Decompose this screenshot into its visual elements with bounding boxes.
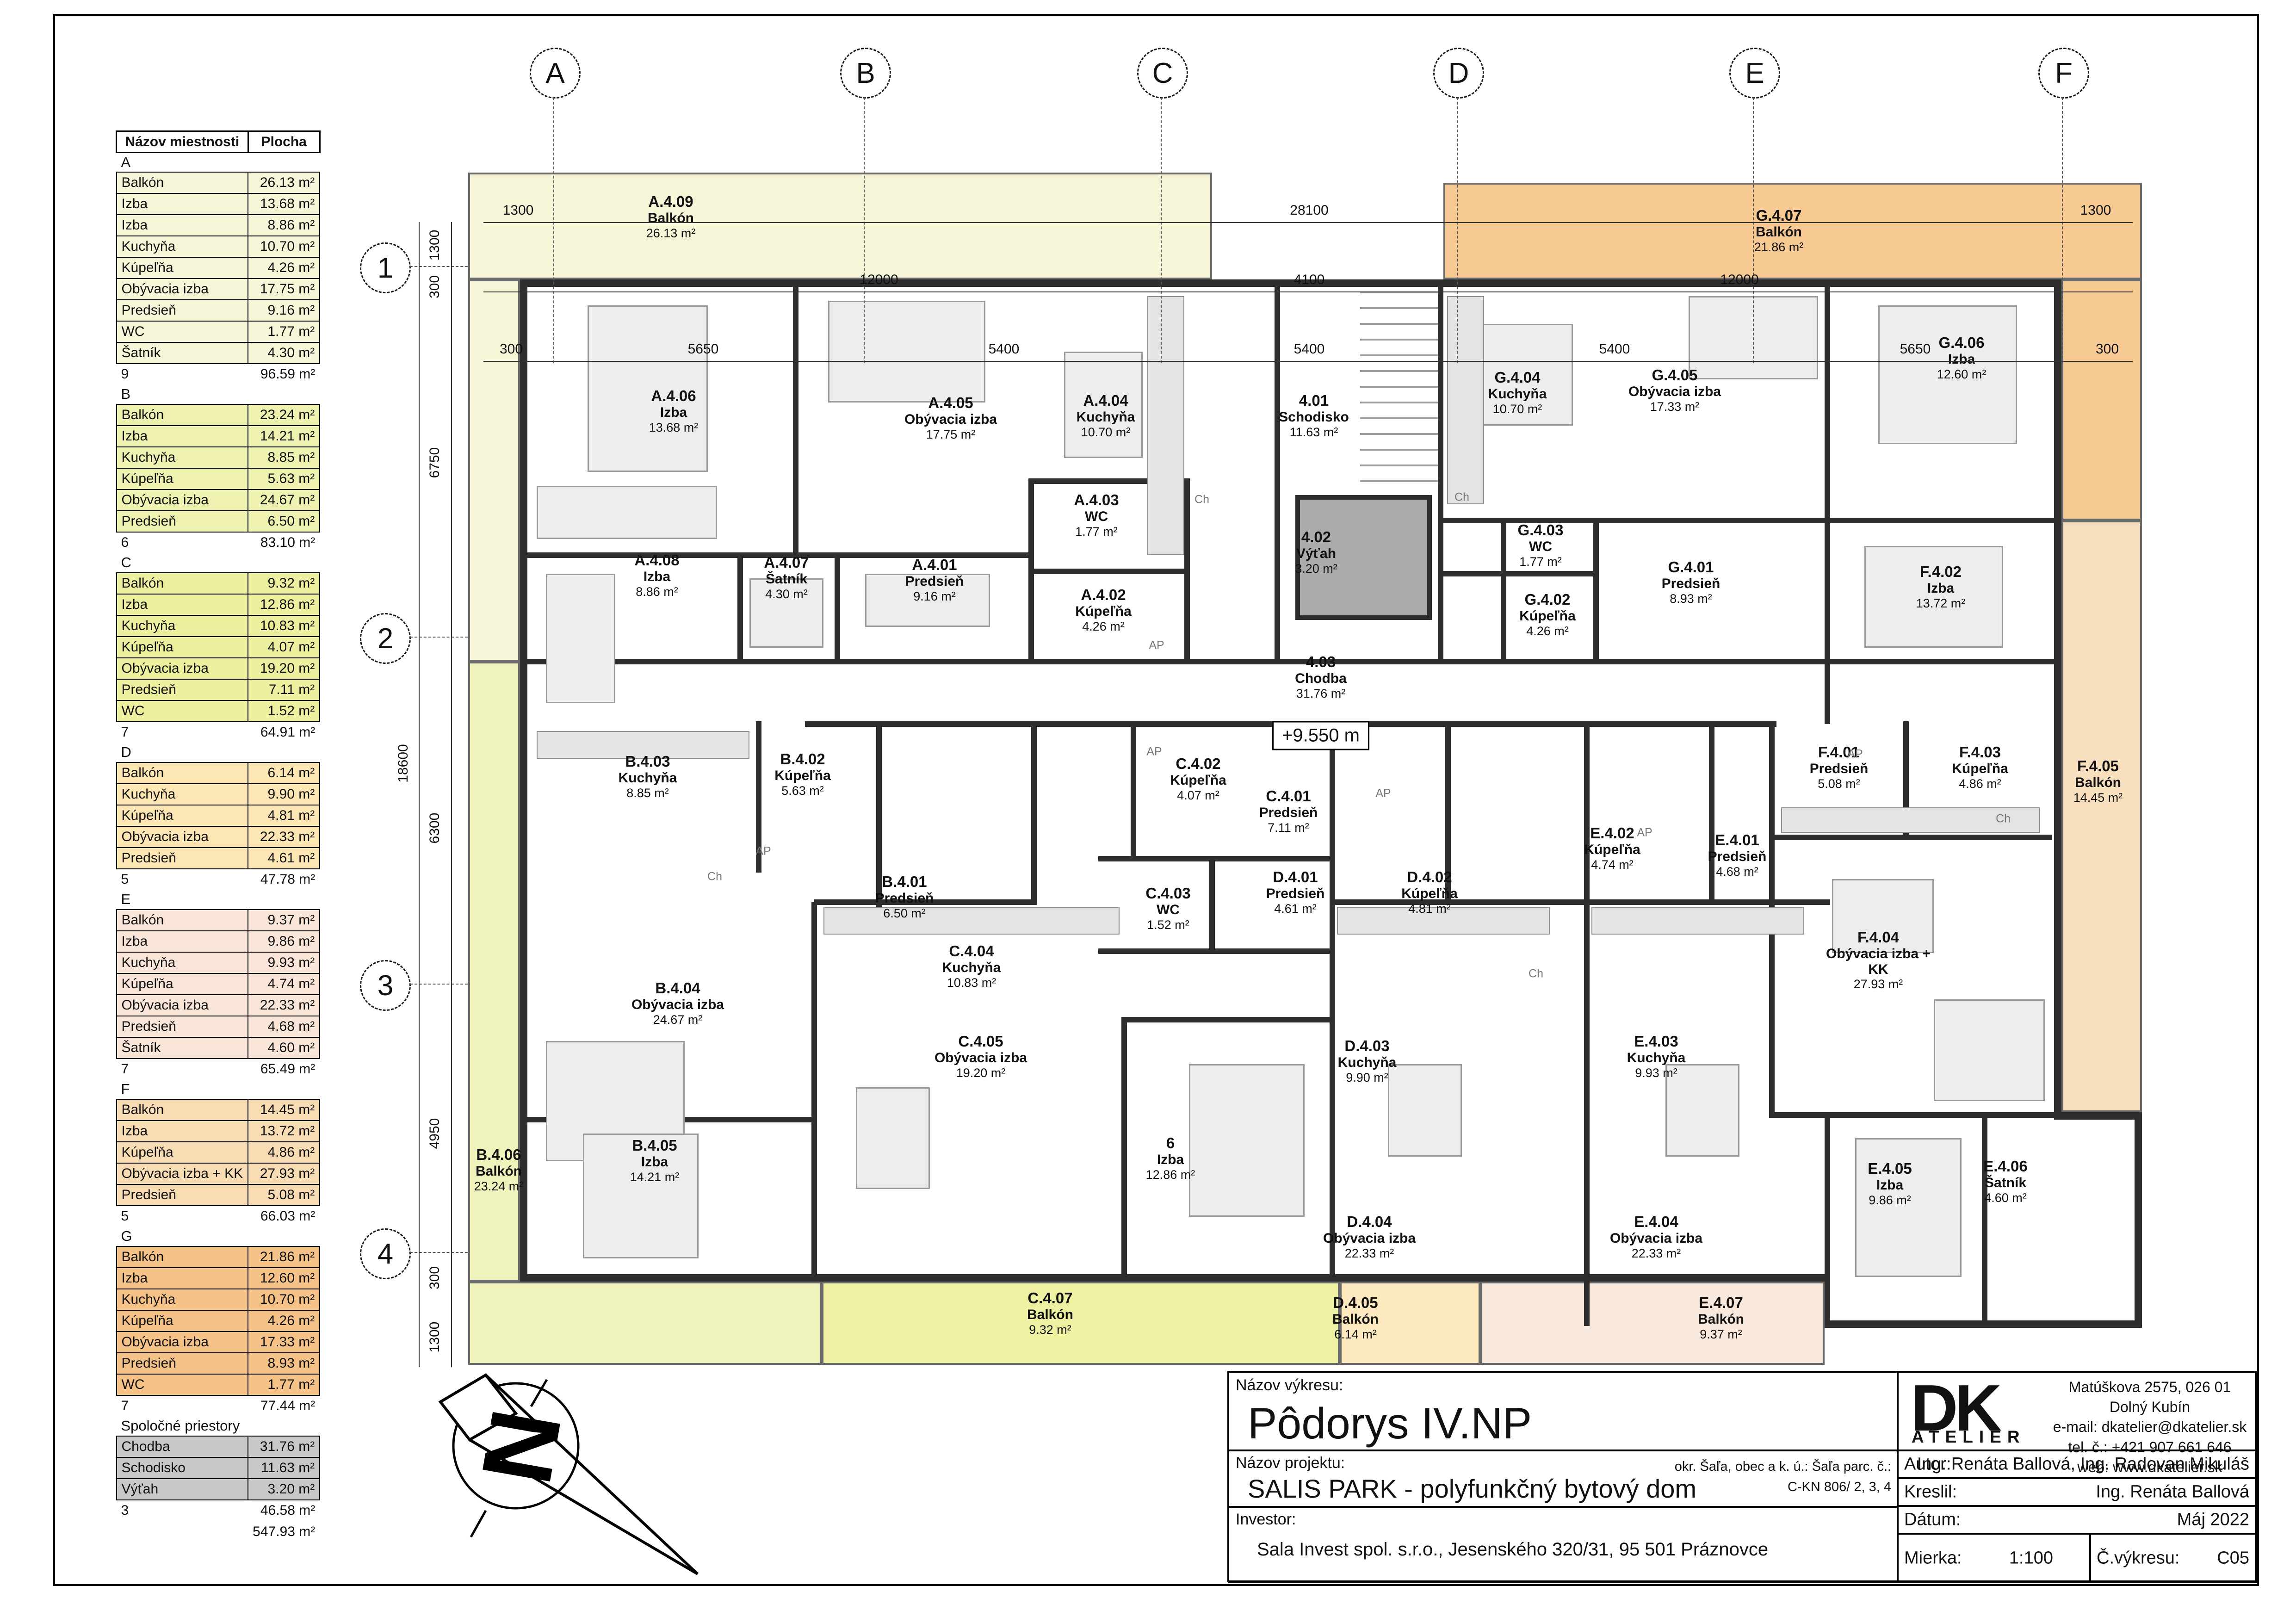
room-label-A.4.04: A.4.04Kuchyňa10.70 m² (1050, 392, 1161, 439)
grid-row-4: 4 (360, 1228, 411, 1279)
room-label-E.4.03: E.4.03Kuchyňa9.93 m² (1601, 1033, 1712, 1080)
room-label-G.4.02: G.4.02Kúpeľňa4.26 m² (1492, 591, 1603, 638)
balcony-right-G (2061, 279, 2142, 520)
grid-row-3: 3 (360, 960, 411, 1011)
floor-plan-sheet: { "legend": { "header": ["Názov miestnos… (0, 0, 2296, 1623)
legend-row: Kuchyňa10.70 m² (117, 1289, 320, 1310)
room-label-B.4.01: B.4.01Predsieň6.50 m² (849, 873, 960, 920)
wall (1825, 287, 1830, 520)
room-label-C.4.05: C.4.05Obývacia izba19.20 m² (925, 1033, 1036, 1080)
dimension-text: 1300 (2080, 203, 2111, 218)
room-label-C.4.07: C.4.07Balkón9.32 m² (995, 1290, 1106, 1337)
legend-row: Predsieň4.61 m² (117, 848, 320, 869)
legend-row: Predsieň7.11 m² (117, 679, 320, 700)
room-label-A.4.05: A.4.05Obývacia izba17.75 m² (895, 395, 1006, 441)
room-label-B.4.05: B.4.05Izba14.21 m² (599, 1137, 710, 1184)
dimension-line (483, 361, 2133, 362)
furniture (1934, 999, 2045, 1101)
mierka-label: Mierka: (1904, 1548, 1962, 1568)
grid-line (1753, 97, 1754, 363)
datum-label: Dátum: (1904, 1510, 1961, 1530)
washer-tag: AP (1847, 748, 1863, 761)
legend-table: Názov miestnostiPlochaABalkón26.13 m²Izb… (116, 130, 321, 1542)
room-label-B.4.03: B.4.03Kuchyňa8.85 m² (592, 753, 703, 800)
dimension-text: 6300 (427, 813, 443, 844)
room-label-F.4.02: F.4.02Izba13.72 m² (1885, 564, 1996, 610)
dimension-text: 4100 (1294, 272, 1325, 288)
dimension-line (419, 222, 420, 1367)
legend-row: Kúpeľňa5.63 m² (117, 468, 320, 489)
wall (2135, 1112, 2142, 1328)
legend-row: Obývacia izba + KK27.93 m² (117, 1163, 320, 1184)
legend-row: Izba12.60 m² (117, 1268, 320, 1289)
wall (520, 1274, 1830, 1282)
legend-row: Izba12.86 m² (117, 594, 320, 615)
legend-row: Obývacia izba22.33 m² (117, 995, 320, 1016)
room-label-C.4.01: C.4.01Predsieň7.11 m² (1233, 788, 1344, 835)
fridge-tag: Ch (1529, 967, 1543, 981)
legend-row: Balkón6.14 m² (117, 762, 320, 784)
kreslil-label: Kreslil: (1904, 1482, 1957, 1502)
north-arrow-icon: N (416, 1356, 712, 1605)
wall (1982, 1115, 1987, 1326)
legend-row: Balkón14.45 m² (117, 1099, 320, 1121)
room-label-A.4.07: A.4.07Šatník4.30 m² (731, 554, 842, 601)
grid-line (553, 97, 554, 363)
washer-tag: AP (755, 845, 771, 858)
washer-tag: AP (1149, 639, 1164, 652)
legend-section-2: C (117, 553, 320, 573)
washer-tag: AP (1637, 826, 1652, 840)
title-block: Názov výkresu: Pôdorys IV.NP Názov proje… (1227, 1371, 2257, 1582)
wall (1825, 518, 1830, 724)
dk-logo-subtitle: ATELIÉR (1912, 1427, 2026, 1447)
elevation-marker: +9.550 m (1272, 721, 1369, 750)
legend-row: Izba13.72 m² (117, 1121, 320, 1142)
legend-row: Kúpeľňa4.26 m² (117, 257, 320, 279)
balcony-F405 (2061, 520, 2142, 1112)
legend-row: Predsieň5.08 m² (117, 1184, 320, 1206)
grid-line (2062, 97, 2063, 363)
room-label-A.4.01: A.4.01Predsieň9.16 m² (879, 557, 990, 603)
room-label-F.4.04: F.4.04Obývacia izba + KK27.93 m² (1823, 929, 1934, 991)
wall (1121, 1017, 1332, 1022)
legend-sum-row: 777.44 m² (117, 1395, 320, 1417)
legend-row: Kuchyňa10.70 m² (117, 236, 320, 257)
legend-section-6: G (117, 1227, 320, 1246)
fridge-tag: Ch (1996, 812, 2011, 826)
dimension-text: 12000 (860, 272, 898, 288)
project-title: SALIS PARK - polyfunkčný bytový dom (1248, 1474, 1696, 1504)
room-label-E.4.05: E.4.05Izba9.86 m² (1834, 1160, 1945, 1207)
wall (520, 279, 527, 1282)
room-label-A.4.02: A.4.02Kúpeľňa4.26 m² (1048, 587, 1159, 633)
room-label-B.4.06: B.4.06Balkón23.24 m² (443, 1146, 554, 1193)
svg-text:N: N (460, 1402, 582, 1492)
furniture (856, 1087, 930, 1189)
furniture (828, 301, 985, 403)
room-label-F.4.01: F.4.01Predsieň5.08 m² (1783, 744, 1894, 791)
balcony-left-top (468, 279, 520, 662)
autor-value: Ing. Renáta Ballová, Ing. Radovan Mikulá… (1917, 1455, 2249, 1474)
legend-row: Balkón21.86 m² (117, 1246, 320, 1268)
wall (1443, 571, 1596, 576)
room-label-A.4.06: A.4.06Izba13.68 m² (618, 388, 729, 434)
investor-name: Sala Invest spol. s.r.o., Jesenského 320… (1257, 1539, 1768, 1560)
stairs (1360, 291, 1438, 486)
wall (1184, 478, 1190, 662)
legend-sum-row: 547.78 m² (117, 869, 320, 890)
legend-sum-row: 683.10 m² (117, 532, 320, 553)
legend-section-0: A (117, 153, 320, 172)
legend-section-7: Spoločné priestory (117, 1417, 320, 1436)
dimension-line (483, 222, 2133, 223)
dimension-text: 300 (500, 341, 523, 357)
grid-column-F: F (2038, 48, 2089, 99)
legend-row: Predsieň8.93 m² (117, 1353, 320, 1374)
room-label-B.4.02: B.4.02Kúpeľňa5.63 m² (747, 751, 858, 798)
legend-grand-total: 547.93 m² (117, 1521, 320, 1542)
legend-row: Výťah3.20 m² (117, 1479, 320, 1500)
room-label-G.4.05: G.4.05Obývacia izba17.33 m² (1619, 367, 1730, 414)
drawing-title: Pôdorys IV.NP (1248, 1399, 1532, 1449)
dimension-line (483, 291, 2133, 292)
grid-line (1161, 97, 1162, 363)
room-label-A.4.09: A.4.09Balkón26.13 m² (615, 193, 726, 240)
legend-section-5: F (117, 1080, 320, 1099)
project-title-label: Názov projektu: (1236, 1454, 1345, 1472)
datum-value: Máj 2022 (2177, 1510, 2249, 1530)
legend-header-name: Názov miestnosti (117, 131, 248, 153)
cislo-vykresu-label: Č.výkresu: (2097, 1548, 2179, 1568)
room-label-A.4.03: A.4.03WC1.77 m² (1041, 492, 1152, 539)
room-label-B.4.04: B.4.04Obývacia izba24.67 m² (622, 980, 733, 1027)
balcony-B406 (468, 1282, 822, 1365)
legend-row: Obývacia izba22.33 m² (117, 826, 320, 848)
legend-row: Kuchyňa9.90 m² (117, 784, 320, 805)
legend-row: Balkón26.13 m² (117, 172, 320, 193)
legend-row: Izba8.86 m² (117, 215, 320, 236)
grid-line (864, 97, 865, 363)
dimension-text: 18600 (396, 744, 411, 782)
grid-column-A: A (530, 48, 581, 99)
balcony-A409 (468, 173, 1212, 279)
legend-row: Šatník4.60 m² (117, 1037, 320, 1059)
legend-row: Obývacia izba17.75 m² (117, 279, 320, 300)
room-label-C.4.04: C.4.04Kuchyňa10.83 m² (916, 943, 1027, 990)
wall (1098, 856, 1332, 861)
dimension-text: 300 (427, 1266, 443, 1289)
washer-tag: AP (1375, 787, 1391, 800)
dimension-text: 5400 (1294, 341, 1325, 357)
legend-row: Izba9.86 m² (117, 931, 320, 952)
room-label-E.4.07: E.4.07Balkón9.37 m² (1665, 1295, 1776, 1341)
room-label-D.4.04: D.4.04Obývacia izba22.33 m² (1314, 1214, 1425, 1260)
legend-header-area: Plocha (248, 131, 320, 153)
dimension-text: 1300 (503, 203, 534, 218)
dimension-line (451, 222, 452, 1367)
legend-row: Predsieň4.68 m² (117, 1016, 320, 1037)
fridge-tag: Ch (1194, 493, 1209, 507)
fridge-tag: Ch (1454, 491, 1469, 504)
furniture (537, 486, 717, 539)
wall (1275, 287, 1280, 659)
furniture (1855, 1138, 1962, 1277)
legend-section-3: D (117, 743, 320, 762)
legend-row: Obývacia izba19.20 m² (117, 658, 320, 679)
wall (1584, 899, 1830, 905)
dimension-text: 5650 (1900, 341, 1931, 357)
room-area-legend: Názov miestnostiPlochaABalkón26.13 m²Izb… (116, 130, 321, 1542)
dimension-text: 300 (2096, 341, 2119, 357)
wall (1769, 835, 2052, 840)
kitchen-counter (1591, 907, 1804, 935)
legend-row: Predsieň9.16 m² (117, 300, 320, 321)
dimension-text: 1300 (427, 1322, 443, 1353)
investor-label: Investor: (1236, 1511, 1296, 1529)
legend-sum-row: 765.49 m² (117, 1059, 320, 1080)
mierka-value: 1:100 (2009, 1548, 2053, 1568)
grid-line (1457, 97, 1458, 363)
dimension-text: 28100 (1290, 203, 1328, 218)
drawing-title-label: Názov výkresu: (1236, 1376, 1343, 1394)
legend-row: Kúpeľňa4.74 m² (117, 973, 320, 995)
wall (811, 902, 817, 1280)
legend-row: Balkón23.24 m² (117, 404, 320, 426)
legend-row: Schodisko11.63 m² (117, 1457, 320, 1479)
room-label-E.4.04: E.4.04Obývacia izba22.33 m² (1601, 1214, 1712, 1260)
legend-row: WC1.52 m² (117, 700, 320, 722)
legend-row: Kuchyňa9.93 m² (117, 952, 320, 973)
wall (520, 279, 2061, 287)
room-label-D.4.03: D.4.03Kuchyňa9.90 m² (1312, 1038, 1423, 1084)
legend-row: Chodba31.76 m² (117, 1436, 320, 1457)
grid-column-C: C (1137, 48, 1188, 99)
room-label-D.4.05: D.4.05Balkón6.14 m² (1300, 1295, 1411, 1341)
dimension-text: 300 (427, 275, 443, 298)
legend-row: Kuchyňa10.83 m² (117, 615, 320, 637)
kreslil-value: Ing. Renáta Ballová (2096, 1482, 2249, 1502)
wall (1438, 287, 1443, 659)
dimension-text: 5650 (688, 341, 719, 357)
wall (793, 287, 798, 555)
legend-row: Obývacia izba24.67 m² (117, 489, 320, 511)
wall (1825, 1115, 1830, 1326)
legend-row: Kúpeľňa4.26 m² (117, 1310, 320, 1332)
room-label-6: 6Izba12.86 m² (1115, 1135, 1226, 1182)
room-label-E.4.06: E.4.06Šatník4.60 m² (1950, 1158, 2061, 1205)
location-parcel: okr. Šaľa, obec a k. ú.: Šaľa parc. č.: … (1675, 1457, 1891, 1497)
grid-row-2: 2 (360, 613, 411, 664)
legend-sum-row: 566.03 m² (117, 1206, 320, 1227)
legend-row: Izba13.68 m² (117, 193, 320, 215)
wall (1031, 569, 1187, 574)
grid-column-B: B (840, 48, 891, 99)
room-label-C.4.03: C.4.03WC1.52 m² (1113, 885, 1224, 932)
fridge-tag: Ch (707, 870, 722, 884)
wall (1584, 721, 1590, 1326)
grid-column-E: E (1729, 48, 1780, 99)
legend-row: Balkón9.37 m² (117, 910, 320, 931)
legend-sum-row: 996.59 m² (117, 364, 320, 385)
legend-row: Kúpeľňa4.86 m² (117, 1142, 320, 1163)
legend-sum-row: 346.58 m² (117, 1500, 320, 1521)
legend-row: Kúpeľňa4.81 m² (117, 805, 320, 826)
room-label-G.4.03: G.4.03WC1.77 m² (1485, 522, 1596, 569)
room-label-G.4.04: G.4.04Kuchyňa10.70 m² (1462, 369, 1573, 416)
legend-row: Izba14.21 m² (117, 426, 320, 447)
dimension-text: 6750 (427, 447, 443, 478)
legend-sum-row: 764.91 m² (117, 722, 320, 743)
dimension-text: 12000 (1720, 272, 1758, 288)
legend-row: Obývacia izba17.33 m² (117, 1332, 320, 1353)
room-label-A.4.08: A.4.08Izba8.86 m² (601, 552, 712, 599)
dimension-text: 4950 (427, 1118, 443, 1149)
grid-column-D: D (1433, 48, 1484, 99)
stair-landing (1284, 291, 1358, 486)
wall (1031, 721, 1037, 905)
dimension-text: 5400 (989, 341, 1020, 357)
legend-row: WC1.77 m² (117, 1374, 320, 1395)
room-label-G.4.07: G.4.07Balkón21.86 m² (1723, 207, 1834, 254)
room-label-D.4.01: D.4.01Predsieň4.61 m² (1240, 869, 1351, 916)
wall (1769, 1112, 2142, 1118)
dimension-text: 1300 (427, 230, 443, 261)
legend-row: Balkón9.32 m² (117, 573, 320, 594)
room-label-G.4.01: G.4.01Predsieň8.93 m² (1635, 559, 1746, 606)
washer-tag: AP (1146, 745, 1162, 759)
legend-row: WC1.77 m² (117, 321, 320, 342)
room-label-F.4.03: F.4.03Kúpeľňa4.86 m² (1925, 744, 2036, 791)
grid-row-1: 1 (360, 242, 411, 293)
cislo-vykresu-value: C05 (2217, 1548, 2249, 1568)
legend-section-4: E (117, 890, 320, 910)
wall (1131, 721, 1136, 859)
room-label-4.02: 4.02Výťah3.20 m² (1261, 529, 1372, 576)
legend-row: Kuchyňa8.85 m² (117, 447, 320, 468)
room-label-4.03: 4.03Chodba31.76 m² (1265, 654, 1376, 700)
legend-row: Kúpeľňa4.07 m² (117, 637, 320, 658)
dimension-text: 5400 (1599, 341, 1630, 357)
room-label-E.4.01: E.4.01Predsieň4.68 m² (1682, 832, 1793, 879)
legend-section-1: B (117, 385, 320, 404)
wall (1098, 948, 1332, 954)
room-label-F.4.05: F.4.05Balkón14.45 m² (2042, 758, 2154, 805)
room-label-D.4.02: D.4.02Kúpeľňa4.81 m² (1374, 869, 1485, 916)
legend-row: Predsieň6.50 m² (117, 511, 320, 532)
wall (2054, 279, 2061, 1120)
room-label-4.01: 4.01Schodisko11.63 m² (1258, 392, 1369, 439)
legend-row: Šatník4.30 m² (117, 342, 320, 364)
region-D (1335, 727, 1584, 1274)
